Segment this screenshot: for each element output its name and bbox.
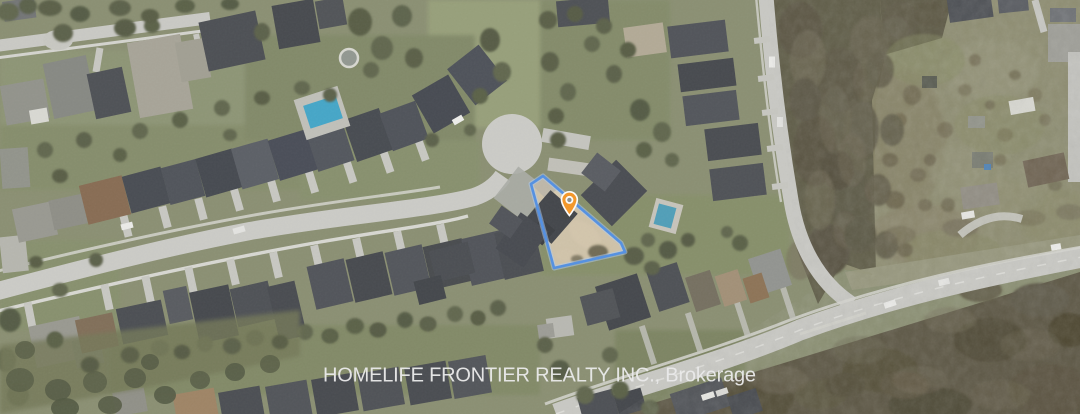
svg-text:HOMELIFE FRONTIER REALTY INC.,: HOMELIFE FRONTIER REALTY INC., Brokerage [323,365,756,387]
